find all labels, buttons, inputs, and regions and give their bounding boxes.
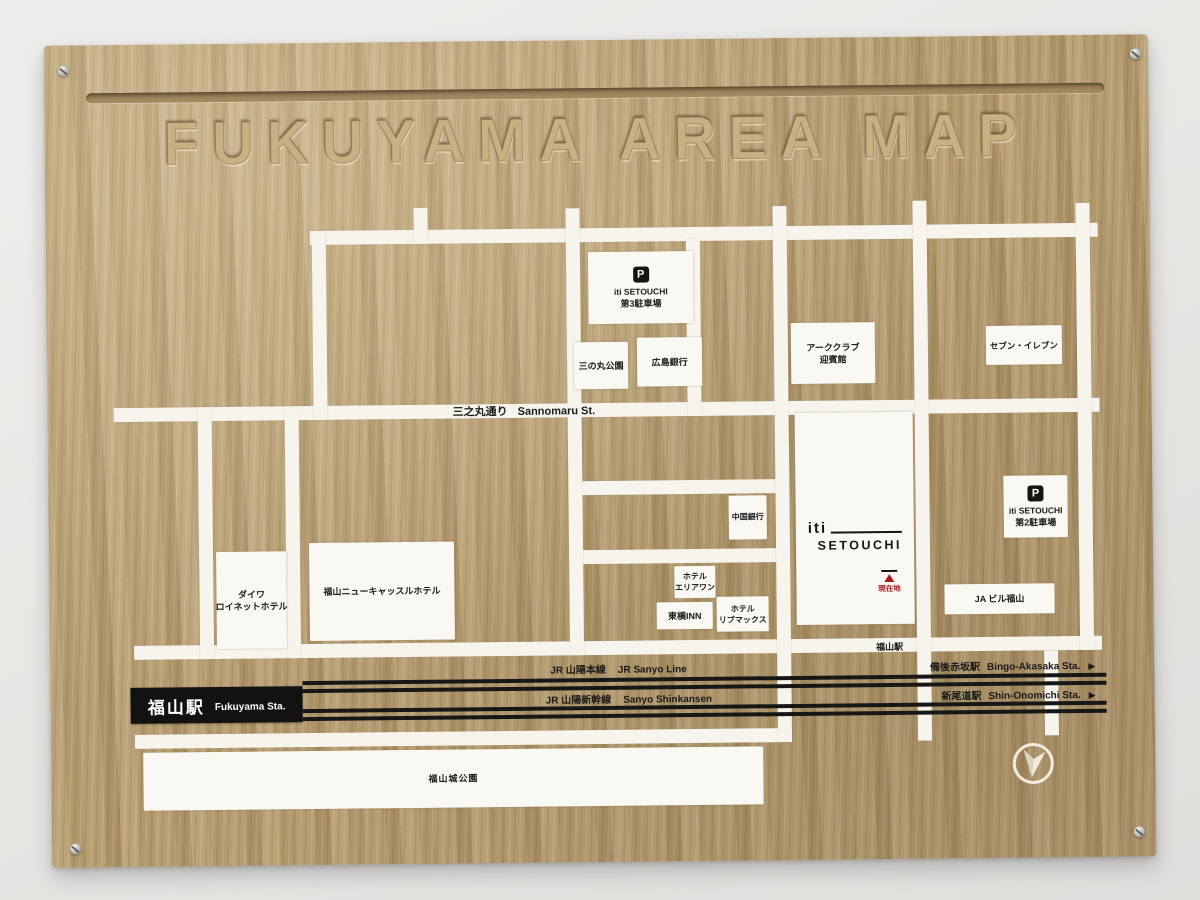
station-label-on-road: 福山駅 xyxy=(876,640,903,653)
road-mid-street-upper xyxy=(570,479,788,495)
street-label-sannomaru: 三之丸通りSannomaru St. xyxy=(452,402,595,419)
place-label: ダイワ xyxy=(238,588,265,600)
place-daiwa-roynet-hotel: ダイワロイネットホテル xyxy=(216,551,287,649)
parking-icon: P xyxy=(1027,485,1043,501)
destination-en: Shin-Onomichi Sta. xyxy=(988,690,1080,702)
place-hiroshima-bank: 広島銀行 xyxy=(637,337,703,387)
street-name-jp: 三之丸通り xyxy=(453,406,508,419)
street-name-en: Sannomaru St. xyxy=(518,405,596,418)
place-fukuyama-new-castle-hotel: 福山ニューキャッスルホテル xyxy=(309,542,455,642)
destination-jp: 備後赤坂駅 xyxy=(930,662,980,674)
road-center-cross xyxy=(565,208,584,655)
railway-label-shinkansen: JR 山陽新幹線Sanyo Shinkansen xyxy=(546,689,713,706)
road-northwest-cross xyxy=(312,231,328,420)
place-label: ロイネットホテル xyxy=(216,600,288,613)
place-iti-setouchi-parking-2: Piti SETOUCHI第2駐車場 xyxy=(1003,475,1068,538)
place-ark-club-geihinkan: アーククラブ迎賓館 xyxy=(791,322,876,384)
map-board: FUKUYAMA AREA MAP 三之丸通りSannomaru St. iti… xyxy=(44,34,1157,868)
place-ja-building-fukuyama: JA ビル福山 xyxy=(944,583,1054,614)
current-location-marker: 現在地 xyxy=(874,570,904,594)
place-label: 福山ニューキャッスルホテル xyxy=(323,585,440,598)
place-fukuyama-castle-park: 福山城公園 xyxy=(143,746,764,810)
railway-name-jp: JR 山陽新幹線 xyxy=(546,694,612,706)
railway-label-sanyo-line: JR 山陽本線JR Sanyo Line xyxy=(550,660,687,676)
place-label: 東横INN xyxy=(668,609,702,621)
fukuyama-station-box: 福山駅 Fukuyama Sta. xyxy=(130,686,302,724)
place-label: 広島銀行 xyxy=(651,356,687,368)
place-chugoku-bank: 中国銀行 xyxy=(728,495,766,539)
place-label: エリアワン xyxy=(675,582,715,593)
current-location-label: 現在地 xyxy=(874,583,904,594)
place-label: セブン・イレブン xyxy=(990,339,1058,352)
place-label: 第2駐車場 xyxy=(1015,516,1056,528)
place-label: 第3駐車場 xyxy=(620,297,661,309)
road-top-street xyxy=(310,223,1098,245)
place-toyoko-inn: 東横INN xyxy=(657,602,713,630)
place-label: 迎賓館 xyxy=(819,353,846,365)
place-label: ホテル xyxy=(731,603,755,614)
place-label: リブマックス xyxy=(719,614,767,625)
parking-icon: P xyxy=(633,266,649,282)
marker-triangle-icon xyxy=(884,574,894,582)
road-south-street xyxy=(135,728,780,749)
place-hotel-livemax: ホテルリブマックス xyxy=(717,596,769,632)
destination-bingo-akasaka: 備後赤坂駅Bingo-Akasaka Sta.▶ xyxy=(795,657,1095,675)
logo-word: iti xyxy=(808,523,827,535)
railway-name-en: Sanyo Shinkansen xyxy=(623,693,712,705)
place-label: iti SETOUCHI xyxy=(1009,504,1063,517)
road-sannomaru-street xyxy=(114,398,1100,422)
place-label: JA ビル福山 xyxy=(975,593,1025,606)
arrow-right-icon: ▶ xyxy=(1088,661,1095,671)
place-label: 中国銀行 xyxy=(732,511,764,523)
destination-en: Bingo-Akasaka Sta. xyxy=(987,661,1080,673)
place-label: 三の丸公園 xyxy=(579,359,624,371)
destination-jp: 新尾道駅 xyxy=(941,691,981,702)
road-iti-west-cross xyxy=(772,206,792,742)
iti-setouchi-logo: iti SETOUCHI xyxy=(808,522,902,553)
road-north-stub xyxy=(413,208,427,244)
road-mid-street-lower xyxy=(571,548,789,564)
railway-name-en: JR Sanyo Line xyxy=(618,664,687,676)
destination-shin-onomichi: 新尾道駅Shin-Onomichi Sta.▶ xyxy=(796,686,1096,704)
logo-subword: SETOUCHI xyxy=(808,538,902,553)
place-label: ホテル xyxy=(683,571,707,582)
place-label: iti SETOUCHI xyxy=(614,285,668,298)
station-name-en: Fukuyama Sta. xyxy=(215,701,286,713)
place-seven-eleven: セブン・イレブン xyxy=(986,325,1062,365)
railway-name-jp: JR 山陽本線 xyxy=(550,665,606,677)
road-west-cross-2 xyxy=(285,406,302,658)
iti-setouchi-building: iti SETOUCHI 現在地 xyxy=(795,412,915,625)
north-arrow-icon xyxy=(1009,740,1057,788)
arrow-right-icon: ▶ xyxy=(1089,690,1096,700)
place-hotel-area-one: ホテルエリアワン xyxy=(674,566,715,598)
station-name-jp: 福山駅 xyxy=(148,693,205,719)
road-west-cross-1 xyxy=(198,407,215,659)
road-east-cross xyxy=(1075,203,1094,650)
marker-bar xyxy=(881,570,897,572)
logo-underline xyxy=(831,530,902,533)
map-area: 三之丸通りSannomaru St. iti SETOUCHI 現在地 JR 山… xyxy=(44,34,1157,868)
place-iti-setouchi-parking-3: Piti SETOUCHI第3駐車場 xyxy=(588,251,694,324)
place-label: アーククラブ xyxy=(806,341,859,354)
place-label: 福山城公園 xyxy=(428,772,478,785)
place-sannomaru-park: 三の丸公園 xyxy=(574,342,628,390)
